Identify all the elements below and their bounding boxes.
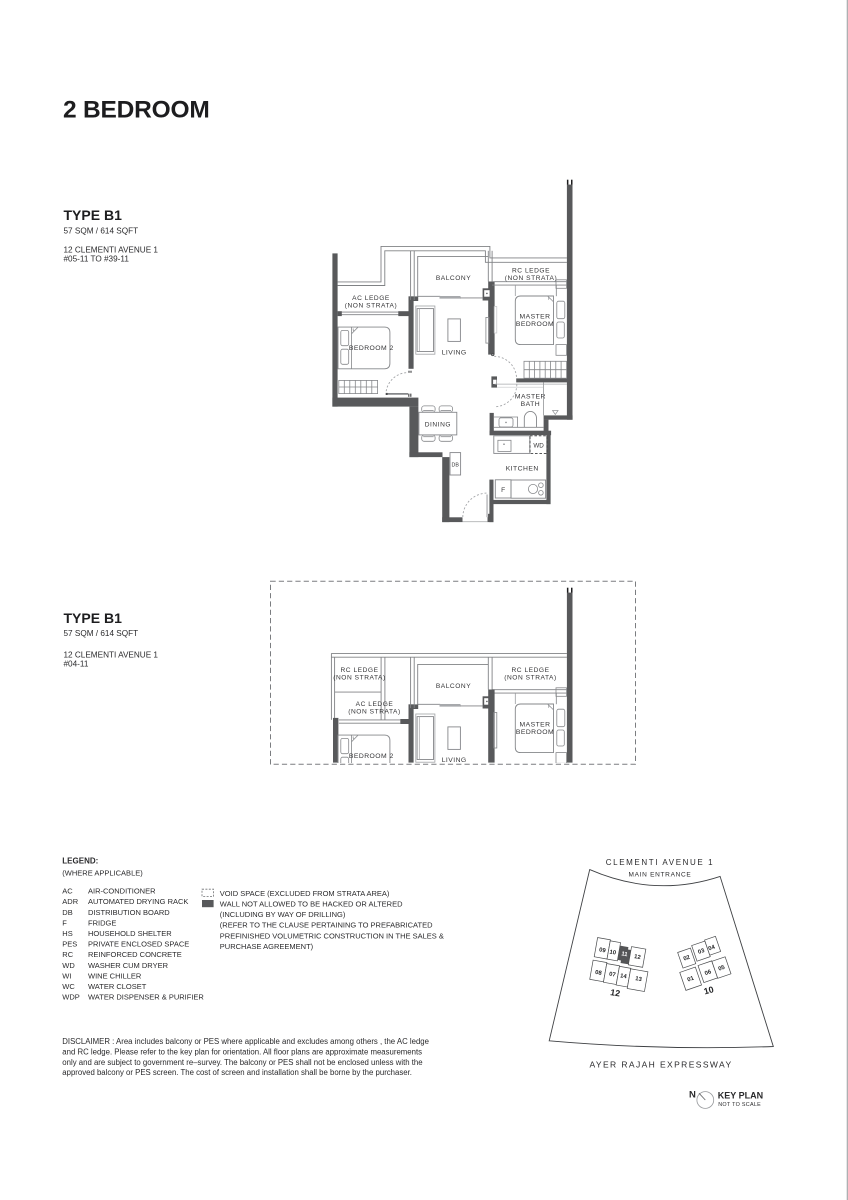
svg-text:BALCONY: BALCONY bbox=[436, 275, 471, 282]
svg-text:DISCLAIMER : Area includes bal: DISCLAIMER : Area includes balcony or PE… bbox=[62, 1037, 429, 1046]
svg-text:WATER CLOSET: WATER CLOSET bbox=[88, 982, 147, 991]
svg-text:DINING: DINING bbox=[425, 422, 451, 429]
svg-text:(REFER TO THE CLAUSE PERTAININ: (REFER TO THE CLAUSE PERTAINING TO PREFA… bbox=[220, 921, 433, 930]
svg-text:LEGEND:: LEGEND: bbox=[62, 857, 98, 866]
svg-text:only and are subject to govern: only and are subject to government re–su… bbox=[62, 1058, 422, 1067]
svg-text:HOUSEHOLD SHELTER: HOUSEHOLD SHELTER bbox=[88, 929, 172, 938]
svg-text:VOID SPACE (EXCLUDED FROM STRA: VOID SPACE (EXCLUDED FROM STRATA AREA) bbox=[220, 889, 390, 898]
svg-text:AIR-CONDITIONER: AIR-CONDITIONER bbox=[88, 887, 156, 896]
svg-text:RC LEDGE: RC LEDGE bbox=[340, 667, 378, 674]
svg-text:WI: WI bbox=[62, 971, 71, 980]
svg-text:CLEMENTI AVENUE 1: CLEMENTI AVENUE 1 bbox=[606, 858, 714, 867]
svg-text:PREFINISHED VOLUMETRIC CONSTRU: PREFINISHED VOLUMETRIC CONSTRUCTION IN T… bbox=[220, 931, 444, 940]
svg-text:DB: DB bbox=[62, 908, 72, 917]
svg-text:12: 12 bbox=[610, 987, 621, 999]
svg-text:PRIVATE ENCLOSED SPACE: PRIVATE ENCLOSED SPACE bbox=[88, 940, 189, 949]
svg-text:BEDROOM 2: BEDROOM 2 bbox=[349, 753, 394, 760]
svg-text:AC: AC bbox=[62, 887, 73, 896]
svg-text:BALCONY: BALCONY bbox=[436, 683, 471, 690]
svg-text:RC: RC bbox=[62, 950, 73, 959]
svg-text:DB: DB bbox=[452, 462, 460, 468]
svg-text:BATH: BATH bbox=[521, 401, 540, 408]
svg-text:(NON STRATA): (NON STRATA) bbox=[348, 709, 401, 716]
svg-text:AUTOMATED DRYING RACK: AUTOMATED DRYING RACK bbox=[88, 897, 188, 906]
svg-text:LIVING: LIVING bbox=[442, 349, 467, 356]
svg-text:DISTRIBUTION BOARD: DISTRIBUTION BOARD bbox=[88, 908, 170, 917]
svg-text:WATER DISPENSER & PURIFIER: WATER DISPENSER & PURIFIER bbox=[88, 993, 204, 1002]
svg-text:(NON STRATA): (NON STRATA) bbox=[505, 275, 558, 282]
svg-text:TYPE B1: TYPE B1 bbox=[64, 207, 123, 223]
svg-text:KITCHEN: KITCHEN bbox=[506, 465, 539, 472]
svg-text:LIVING: LIVING bbox=[442, 757, 467, 764]
svg-text:BEDROOM 2: BEDROOM 2 bbox=[349, 345, 394, 352]
svg-text:REINFORCED CONCRETE: REINFORCED CONCRETE bbox=[88, 950, 182, 959]
svg-text:12 CLEMENTI AVENUE 1: 12 CLEMENTI AVENUE 1 bbox=[64, 651, 159, 660]
svg-text:BEDROOM: BEDROOM bbox=[516, 729, 554, 736]
svg-text:WDP: WDP bbox=[62, 993, 80, 1002]
svg-text:57 SQM / 614 SQFT: 57 SQM / 614 SQFT bbox=[64, 226, 139, 235]
svg-text:HS: HS bbox=[62, 929, 72, 938]
svg-text:FRIDGE: FRIDGE bbox=[88, 918, 116, 927]
svg-text:AYER RAJAH EXPRESSWAY: AYER RAJAH EXPRESSWAY bbox=[589, 1060, 732, 1070]
svg-text:NOT TO SCALE: NOT TO SCALE bbox=[718, 1102, 761, 1108]
svg-text:(WHERE APPLICABLE): (WHERE APPLICABLE) bbox=[62, 869, 143, 878]
svg-text:and RC ledge. Please refer to: and RC ledge. Please refer to the key pl… bbox=[62, 1047, 422, 1056]
svg-text:TYPE B1: TYPE B1 bbox=[64, 610, 123, 626]
svg-text:PES: PES bbox=[62, 940, 77, 949]
svg-text:KEY PLAN: KEY PLAN bbox=[718, 1091, 763, 1101]
svg-text:(NON STRATA): (NON STRATA) bbox=[504, 674, 557, 681]
svg-text:RC LEDGE: RC LEDGE bbox=[512, 267, 550, 274]
svg-text:AC LEDGE: AC LEDGE bbox=[352, 295, 390, 302]
svg-text:2 BEDROOM: 2 BEDROOM bbox=[63, 97, 210, 124]
svg-text:#05-11 TO #39-11: #05-11 TO #39-11 bbox=[64, 255, 130, 264]
svg-text:WALL NOT ALLOWED TO BE HACKED: WALL NOT ALLOWED TO BE HACKED OR ALTERED bbox=[220, 900, 403, 909]
svg-text:(NON STRATA): (NON STRATA) bbox=[345, 302, 398, 309]
svg-text:(NON STRATA): (NON STRATA) bbox=[333, 674, 386, 681]
svg-text:WASHER CUM DRYER: WASHER CUM DRYER bbox=[88, 961, 169, 970]
svg-text:WINE CHILLER: WINE CHILLER bbox=[88, 971, 142, 980]
svg-text:RC LEDGE: RC LEDGE bbox=[511, 667, 549, 674]
svg-text:N: N bbox=[689, 1089, 696, 1100]
svg-text:WC: WC bbox=[62, 982, 75, 991]
svg-text:57 SQM / 614 SQFT: 57 SQM / 614 SQFT bbox=[64, 629, 139, 638]
svg-text:#04-11: #04-11 bbox=[64, 660, 89, 669]
svg-text:F: F bbox=[501, 487, 505, 494]
svg-text:AC LEDGE: AC LEDGE bbox=[356, 701, 394, 708]
svg-text:12 CLEMENTI AVENUE 1: 12 CLEMENTI AVENUE 1 bbox=[64, 246, 159, 255]
svg-text:approved balcony or PES screen: approved balcony or PES screen. The cost… bbox=[62, 1068, 412, 1077]
svg-text:MASTER: MASTER bbox=[519, 314, 550, 321]
svg-text:(INCLUDING BY WAY OF DRILLING): (INCLUDING BY WAY OF DRILLING) bbox=[220, 910, 346, 919]
svg-text:MASTER: MASTER bbox=[515, 394, 546, 401]
svg-text:BEDROOM: BEDROOM bbox=[516, 321, 554, 328]
svg-text:WD: WD bbox=[62, 961, 75, 970]
svg-text:PURCHASE AGREEMENT): PURCHASE AGREEMENT) bbox=[220, 942, 314, 951]
svg-text:F: F bbox=[62, 918, 67, 927]
svg-text:WD: WD bbox=[533, 443, 544, 450]
svg-text:MAIN ENTRANCE: MAIN ENTRANCE bbox=[629, 872, 692, 879]
svg-text:ADR: ADR bbox=[62, 897, 78, 906]
svg-text:MASTER: MASTER bbox=[519, 722, 550, 729]
